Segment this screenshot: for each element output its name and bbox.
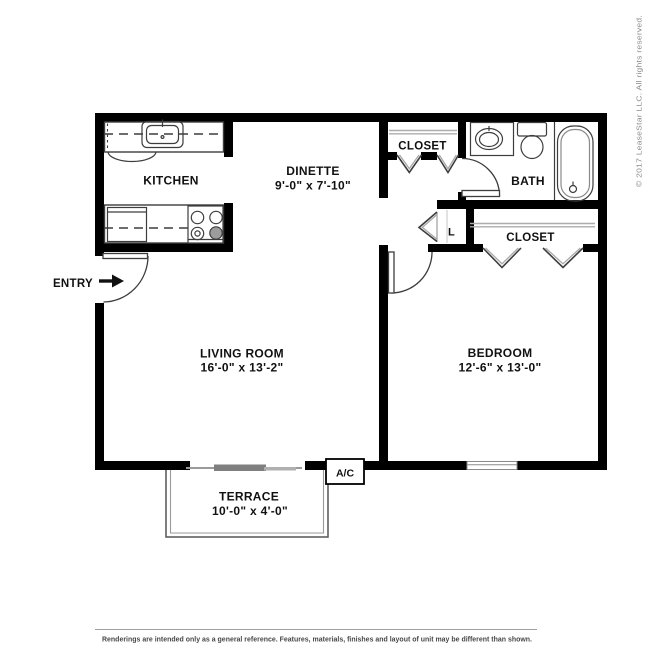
bedroom-window-icon: [467, 462, 517, 470]
bedroom-dimensions: 12'-6" x 13'-0": [459, 361, 542, 375]
linen-closet-label: L: [448, 227, 455, 239]
wall-linen-right: [466, 209, 474, 250]
entry-door-leaf: [103, 254, 148, 259]
hall-closet-rod-icon: [389, 131, 457, 134]
bath-label: BATH: [511, 174, 545, 188]
ac-unit: A/C: [326, 459, 364, 484]
disclaimer-text: Renderings are intended only as a genera…: [102, 635, 532, 644]
wall-bottom-right: [517, 461, 607, 470]
bedroom-closet-door-chevron-icon: [483, 248, 583, 268]
wall-left-upper: [95, 113, 104, 256]
terrace-label: TERRACE: [219, 490, 279, 504]
wall-mid-upper: [379, 113, 388, 198]
bath-fixtures: [471, 122, 594, 201]
floorplan-page: A/C KITCHEN DINETTE 9'-0" x 7'-10" LIVIN…: [0, 0, 650, 650]
entry-label: ENTRY: [53, 278, 93, 290]
kitchen-counter-top: [104, 122, 224, 162]
floor-plan-svg: A/C KITCHEN DINETTE 9'-0" x 7'-10" LIVIN…: [0, 0, 650, 650]
bedroom-door-leaf: [389, 252, 395, 293]
wall-mid-lower: [379, 245, 388, 470]
entry-arrow-icon: [99, 275, 124, 288]
copyright-text: © 2017 LeaseStar LLC. All rights reserve…: [635, 15, 644, 187]
wall-kitchen-bottom: [95, 243, 233, 252]
bedroom-door-arc: [391, 252, 432, 293]
wall-left-lower: [95, 303, 104, 470]
living-room-label: LIVING ROOM: [200, 347, 284, 361]
wall-linen-bottom: [428, 244, 474, 252]
wall-bottom-left: [95, 461, 190, 470]
walls: [95, 113, 607, 470]
counter-round-end: [108, 152, 156, 162]
terrace-dimensions: 10'-0" x 4'-0": [212, 504, 288, 518]
refrigerator-icon: [108, 208, 147, 242]
linen-closet-bifold-icon: [419, 210, 447, 243]
wall-bedcloset-stub-left: [474, 244, 483, 252]
wall-bath-bottom: [437, 200, 607, 209]
living-room-dimensions: 16'-0" x 13'-2": [201, 361, 284, 375]
bedroom-closet-rod-icon: [470, 224, 595, 227]
wall-hallcloset-stub-mid: [421, 152, 437, 160]
ac-label: A/C: [336, 468, 355, 480]
wall-top: [95, 113, 607, 122]
stove-icon: [188, 206, 223, 243]
wall-right: [598, 113, 607, 470]
toilet-icon: [518, 123, 547, 159]
entry-door-arc: [104, 256, 149, 302]
sliding-door-icon: [186, 465, 302, 472]
bathtub-icon: [555, 122, 594, 201]
wall-hallcloset-right: [458, 113, 466, 158]
bath-vanity-sink-icon: [471, 123, 514, 156]
wall-hallcloset-stub-left: [388, 152, 397, 160]
bedroom-label: BEDROOM: [468, 346, 533, 360]
dinette-label: DINETTE: [286, 164, 339, 178]
bedroom-closet-label: CLOSET: [506, 232, 554, 244]
wall-bedcloset-stub-right: [583, 244, 598, 252]
dinette-dimensions: 9'-0" x 7'-10": [275, 179, 351, 193]
disclaimer-block: Renderings are intended only as a genera…: [95, 630, 537, 644]
kitchen-label: KITCHEN: [143, 174, 198, 188]
bath-door-leaf: [462, 191, 500, 197]
kitchen-sink-icon: [142, 120, 183, 148]
wall-kitchen-stub-top: [224, 113, 233, 157]
hall-closet-label: CLOSET: [398, 141, 446, 153]
